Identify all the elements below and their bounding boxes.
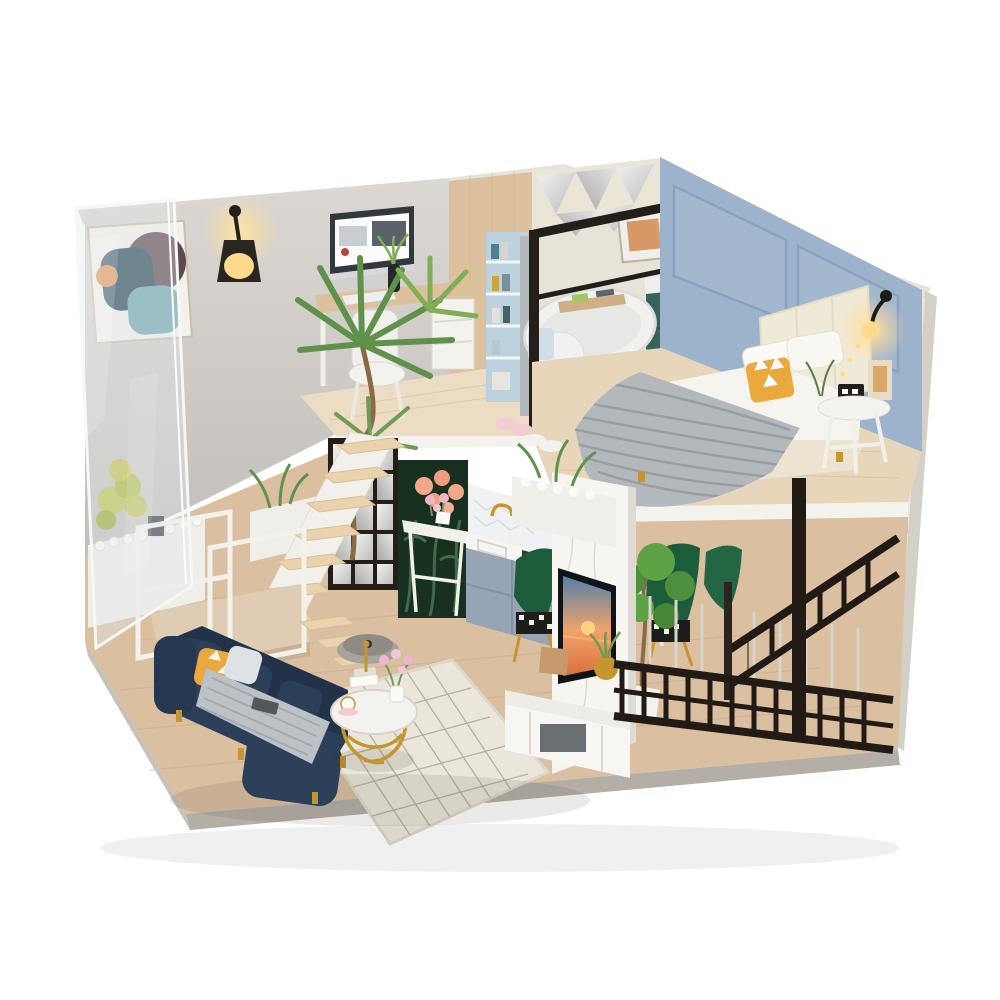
- flower-vase: [390, 686, 404, 702]
- dollhouse-illustration: [0, 0, 1000, 1000]
- sofa-arm-left: [154, 636, 196, 714]
- ground-shadow: [100, 824, 900, 872]
- acrylic-panel: [76, 200, 192, 648]
- table-top: [818, 396, 890, 420]
- monitor-red-cup: [341, 248, 349, 256]
- product-photo-canvas: [0, 0, 1000, 1000]
- monitor-photo-left: [339, 226, 367, 246]
- console-card: [435, 511, 451, 525]
- cabinet-open-shelf: [540, 724, 586, 752]
- sofa-shadow: [170, 774, 590, 826]
- tv-sun: [581, 621, 595, 635]
- lamp-bulb: [224, 253, 254, 279]
- saucer: [338, 708, 358, 716]
- wood-box: [539, 647, 570, 676]
